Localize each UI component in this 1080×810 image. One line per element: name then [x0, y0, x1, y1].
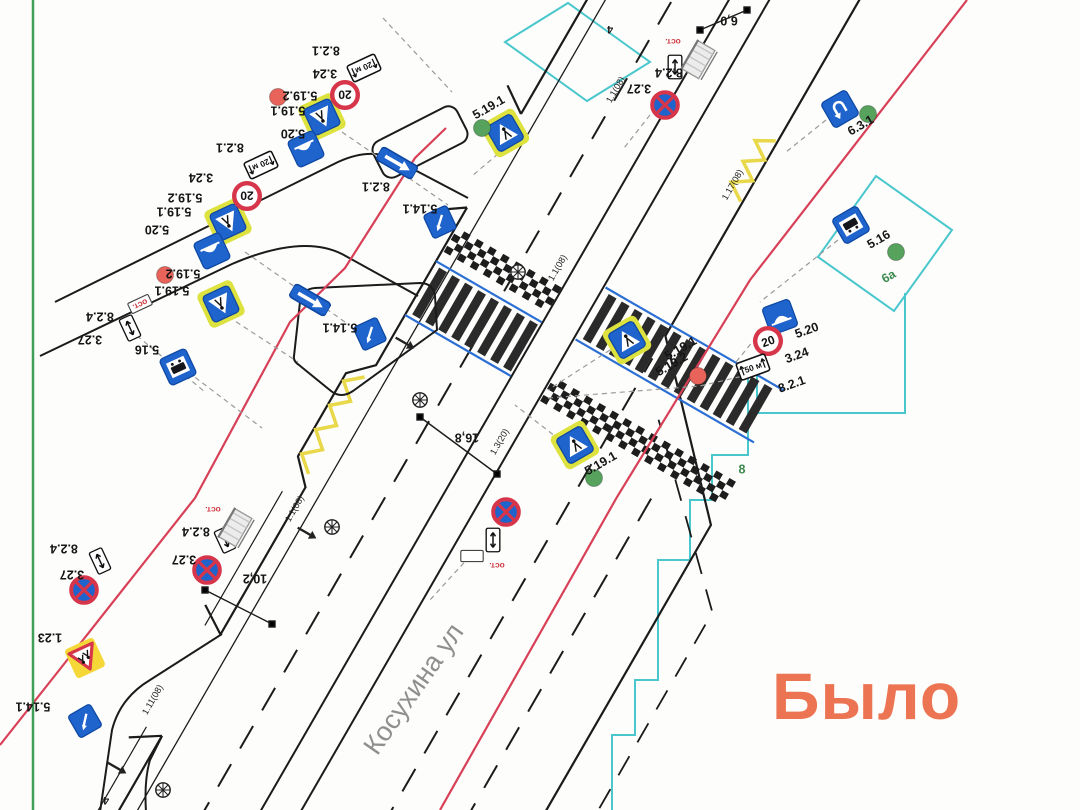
sign-long514 — [375, 146, 419, 180]
sign-code-label: 16,8 — [455, 431, 479, 445]
sign-plate-s — [461, 550, 483, 561]
sign-code-label: 4 — [606, 23, 613, 35]
sign-well — [156, 783, 170, 797]
sign-code-label: 8.2.4 — [655, 66, 683, 80]
sign-code-label: 10,2 — [243, 572, 267, 586]
scheme-page: 2020 м2020 м2050 м 8.2.13.245.19.25.19.1… — [0, 0, 1080, 810]
sign-well — [413, 393, 427, 407]
sign-tarrow — [295, 524, 318, 543]
bus-stop-note: ост. — [205, 505, 221, 515]
road-marking-label: 1.11(08) — [140, 683, 165, 716]
sign-x327 — [493, 499, 519, 525]
sign-code-label: 3.24 — [783, 345, 811, 366]
sign-code-label: 5.19.1 — [271, 104, 306, 118]
sign-p821: 20 м — [347, 54, 382, 83]
sign-code-label: 5.19.1 — [155, 284, 190, 298]
sign-code-label: 5.19.2 — [283, 89, 318, 103]
sign-tarrow — [105, 759, 128, 778]
sign-code-label: 8.2.4 — [86, 310, 114, 324]
sign-code-label: 3.27 — [172, 553, 196, 567]
sign-s324: 20 — [332, 82, 358, 108]
sign-p821: 50 м — [736, 354, 771, 381]
removal-dot — [690, 368, 707, 385]
street-name-label: Косухина ул — [357, 618, 469, 760]
sign-code-label: 5.20 — [145, 223, 169, 237]
status-dots-layer — [157, 89, 905, 487]
sign-code-label: 5.16 — [135, 343, 159, 357]
sign-code-label: 5.14.1 — [323, 321, 358, 335]
sign-code-label: 8.2.4 — [50, 542, 78, 556]
bus-stop-note: ост. — [489, 561, 505, 571]
sign-code-label: 8.2.1 — [216, 141, 244, 155]
sign-code-label: 8.2.1 — [776, 373, 807, 396]
sign-p821: 20 м — [244, 151, 279, 180]
sign-code-label: 3.27 — [60, 568, 84, 582]
sign-well — [511, 265, 525, 279]
sign-s324: 20 — [234, 183, 260, 209]
sign-code-label: 5.14.1 — [16, 700, 51, 714]
sign-code-label: 6,0 — [720, 14, 737, 28]
road-marking-label: 1.1(08) — [546, 253, 569, 283]
road-marking-label: 1.17(08) — [720, 168, 745, 202]
sign-tarrow — [393, 334, 416, 353]
sign-code-label: 8.2.1 — [312, 44, 340, 58]
sign-code-label: 4 — [102, 794, 109, 806]
sign-code-label: 3.24 — [189, 171, 213, 185]
sign-code-label: 5.19.2 — [168, 191, 203, 205]
sign-p824 — [89, 547, 111, 574]
sign-x327 — [652, 92, 678, 118]
sign-sq514 — [68, 704, 103, 739]
keep-dot — [888, 244, 905, 261]
sign-p824 — [486, 528, 500, 552]
sign-code-label: 8 — [739, 462, 746, 476]
sign-well — [325, 520, 339, 534]
sign-code-label: 3.27 — [627, 82, 651, 96]
sign-code-label: 3.24 — [313, 67, 337, 81]
sign-code-label: 6а — [879, 266, 899, 286]
road-marking-label: 1.1(08) — [283, 494, 306, 524]
sign-code-label: 8.2.1 — [362, 180, 390, 194]
sign-bus516 — [159, 348, 197, 386]
bus-stop-note: ост. — [665, 37, 681, 47]
sign-p824 — [119, 314, 141, 341]
sign-value: 20 — [338, 88, 352, 102]
before-state-label: Было — [772, 658, 961, 734]
labels-layer: 8.2.13.245.19.25.19.15.208.2.13.245.19.2… — [16, 14, 899, 806]
lane-line-dashed — [152, 0, 762, 810]
sign-kids123 — [64, 637, 107, 680]
sign-ped — [195, 278, 246, 329]
sign-x327 — [194, 557, 220, 583]
sign-code-label: 5.19.2 — [166, 267, 201, 281]
sign-code-label: 8.2.4 — [182, 525, 210, 539]
sign-code-label: 5.19.1 — [157, 205, 192, 219]
sign-code-label: 5.20 — [281, 127, 305, 141]
sign-value: 20 — [240, 189, 254, 203]
sign-code-label: 1.23 — [38, 631, 62, 645]
sign-code-label: 5.14.1 — [403, 202, 438, 216]
sign-code-label: 3.27 — [78, 333, 102, 347]
